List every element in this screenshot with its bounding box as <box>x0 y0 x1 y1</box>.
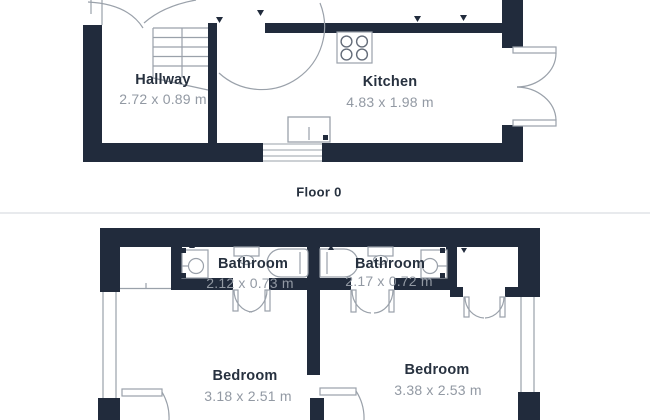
bathroom-left-label: Bathroom <box>218 256 288 272</box>
bedroom-right-dimensions: 3.38 x 2.53 m <box>394 382 481 398</box>
bedroom-left-label: Bedroom <box>212 368 277 384</box>
floorplan-viewer: Hallway 2.72 x 0.89 m Kitchen 4.83 x 1.9… <box>0 0 650 420</box>
french-doors <box>513 47 556 126</box>
floor0-caption: Floor 0 <box>296 185 341 200</box>
hallway-dimensions: 2.72 x 0.89 m <box>119 91 206 107</box>
stove-icon <box>337 32 372 63</box>
floor0-plan <box>0 0 650 213</box>
closet-line <box>120 283 171 289</box>
kitchen-sink-icon <box>288 117 330 142</box>
kitchen-label: Kitchen <box>363 74 418 90</box>
corner-marker <box>440 273 445 278</box>
bedroom-right-label: Bedroom <box>404 362 469 378</box>
corner-marker <box>181 273 186 278</box>
kitchen-dimensions: 4.83 x 1.98 m <box>346 94 433 110</box>
floor1-plan <box>0 220 650 420</box>
floor0-door-arcs <box>88 0 325 90</box>
kitchen-window <box>263 144 322 161</box>
bathroom-right-dimensions: 2.17 x 0.72 m <box>345 273 432 289</box>
hallway-label: Hallway <box>135 72 190 88</box>
corner-marker <box>181 248 186 253</box>
floor-divider <box>0 212 650 214</box>
bathroom-left-dimensions: 2.12 x 0.73 m <box>206 275 293 291</box>
corner-marker <box>440 248 445 253</box>
bedroom-left-dimensions: 3.18 x 2.51 m <box>204 388 291 404</box>
bathroom-right-label: Bathroom <box>355 256 425 272</box>
bathroom-doors <box>233 290 505 318</box>
